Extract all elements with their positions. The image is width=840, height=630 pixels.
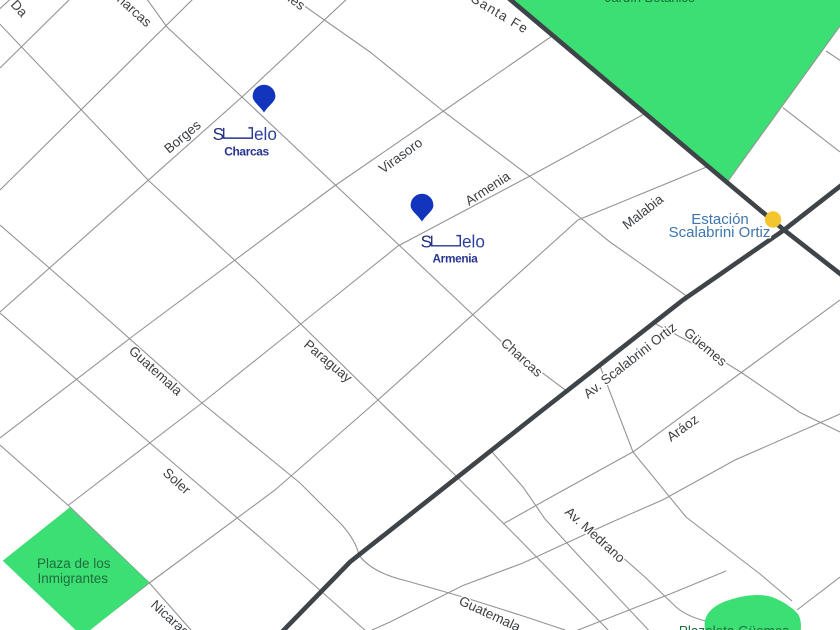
svg-text:Inmigrantes: Inmigrantes	[38, 571, 109, 586]
svg-text:S: S	[421, 232, 432, 252]
svg-text:Plaza de los: Plaza de los	[37, 556, 111, 571]
svg-text:Armenia: Armenia	[432, 252, 478, 266]
svg-text:Scalabrini Ortiz: Scalabrini Ortiz	[669, 224, 771, 241]
svg-text:elo: elo	[254, 124, 277, 144]
svg-text:Charcas: Charcas	[224, 145, 269, 159]
svg-text:elo: elo	[462, 232, 485, 252]
svg-text:Plazoleta Güemes: Plazoleta Güemes	[679, 624, 790, 630]
svg-text:S: S	[213, 124, 224, 144]
svg-text:Jardín Botánico: Jardín Botánico	[605, 0, 695, 5]
